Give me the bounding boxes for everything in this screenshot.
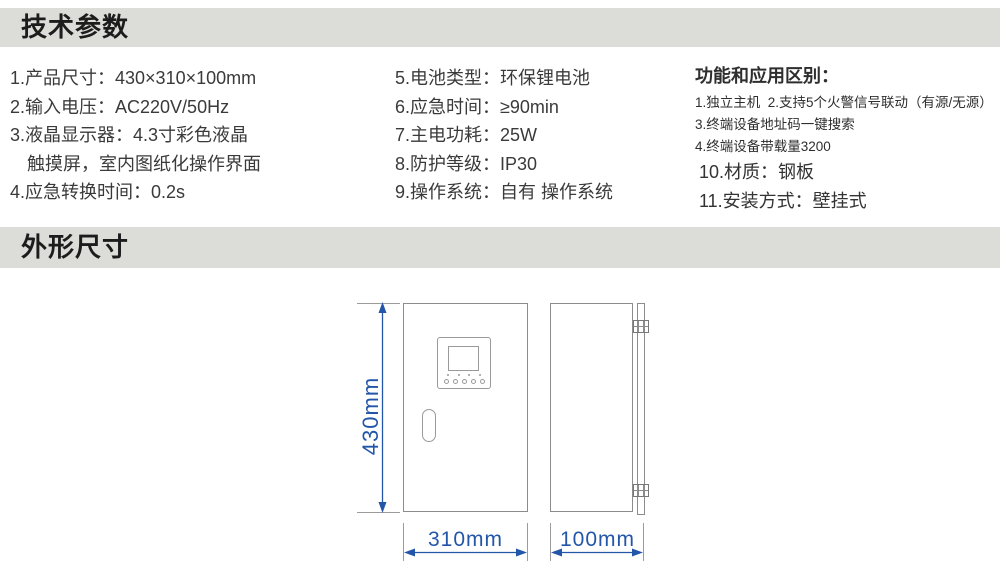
spec-sheet-page: 技术参数 1.产品尺寸：430×310×100mm 2.输入电压：AC220V/…	[0, 0, 1000, 576]
dimension-label-width: 310mm	[403, 528, 528, 552]
panel-screen	[448, 346, 479, 371]
arrow-height-up	[379, 302, 387, 313]
dimension-drawing: 430mm 310mm 100mm	[0, 0, 1000, 576]
hinge-bottom	[633, 484, 649, 497]
dimension-label-depth: 100mm	[551, 528, 644, 552]
cabinet-front-view	[403, 303, 528, 512]
arrow-height-down	[379, 502, 387, 513]
control-panel	[437, 337, 491, 389]
dimension-label-height: 430mm	[358, 366, 382, 466]
hinge-top	[633, 320, 649, 333]
panel-buttons	[444, 379, 485, 384]
cabinet-side-view	[550, 303, 633, 512]
panel-indicator-dots	[447, 374, 481, 376]
door-handle	[422, 409, 436, 442]
